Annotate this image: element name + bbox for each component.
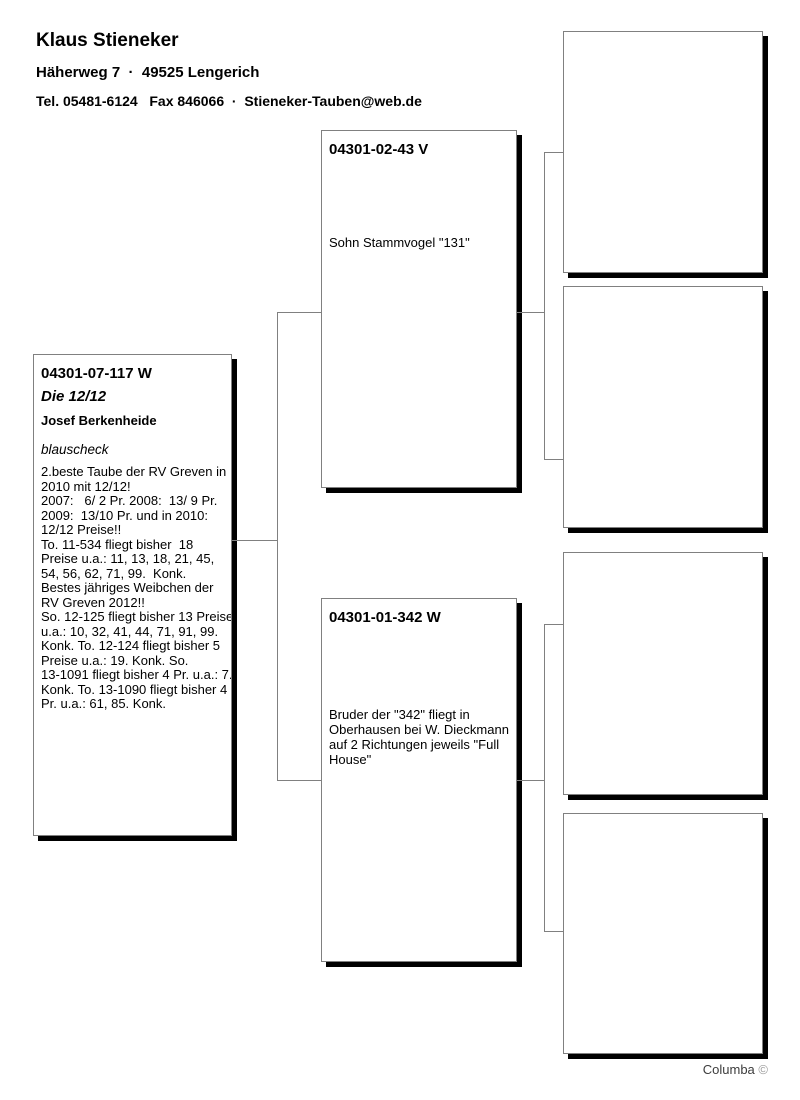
mother-ring-number: 04301-01-342 W bbox=[329, 609, 441, 626]
connector-trunk-to-maternal-grandfather bbox=[544, 624, 563, 625]
grandparent-box-paternal-grandfather bbox=[563, 31, 763, 273]
software-brand: Columba bbox=[703, 1062, 755, 1077]
father-ring-number: 04301-02-43 V bbox=[329, 141, 428, 158]
grandparent-box-maternal-grandfather bbox=[563, 552, 763, 795]
subject-nickname: Die 12/12 bbox=[41, 388, 106, 405]
copyright-icon: © bbox=[758, 1062, 768, 1077]
mother-pigeon-box: 04301-01-342 W Bruder der "342" fliegt i… bbox=[321, 598, 517, 962]
connector-paternal-trunk bbox=[544, 152, 545, 459]
connector-trunk-to-paternal-grandmother bbox=[544, 459, 563, 460]
connector-trunk-to-mother bbox=[277, 780, 321, 781]
connector-trunk-to-paternal-grandfather bbox=[544, 152, 564, 153]
subject-description: 2.beste Taube der RV Greven in 2010 mit … bbox=[41, 465, 232, 712]
father-note: Sohn Stammvogel "131" bbox=[329, 235, 470, 250]
connector-maternal-trunk bbox=[544, 624, 545, 931]
connector-trunk-to-maternal-grandmother bbox=[544, 931, 563, 932]
connector-mother-to-trunk bbox=[517, 780, 544, 781]
subject-pigeon-box: 04301-07-117 W Die 12/12 Josef Berkenhei… bbox=[33, 354, 232, 836]
subject-ring-number: 04301-07-117 W bbox=[41, 365, 152, 382]
pedigree-page: Klaus Stieneker Häherweg 7 · 49525 Lenge… bbox=[0, 0, 800, 1100]
software-credit: Columba © bbox=[0, 1062, 768, 1077]
owner-contact: Tel. 05481-6124 Fax 846066 · Stieneker-T… bbox=[36, 93, 422, 109]
mother-note: Bruder der "342" fliegt in Oberhausen be… bbox=[329, 707, 509, 767]
subject-breeder: Josef Berkenheide bbox=[41, 413, 157, 428]
owner-name: Klaus Stieneker bbox=[36, 30, 179, 52]
connector-subject-to-trunk bbox=[232, 540, 277, 541]
grandparent-box-paternal-grandmother bbox=[563, 286, 763, 528]
father-pigeon-box: 04301-02-43 V Sohn Stammvogel "131" bbox=[321, 130, 517, 488]
grandparent-box-maternal-grandmother bbox=[563, 813, 763, 1054]
subject-color: blauscheck bbox=[41, 442, 109, 457]
connector-parents-trunk bbox=[277, 312, 278, 780]
owner-address: Häherweg 7 · 49525 Lengerich bbox=[36, 64, 259, 81]
connector-trunk-to-father bbox=[277, 312, 321, 313]
connector-father-to-trunk bbox=[517, 312, 544, 313]
